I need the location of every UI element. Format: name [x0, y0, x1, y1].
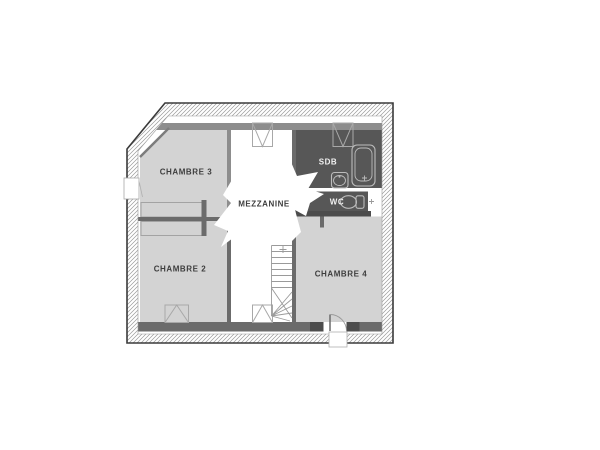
room-label-chambre3: CHAMBRE 3 — [160, 168, 213, 177]
wall-bottom-cap-right — [347, 322, 360, 332]
rooms — [140, 130, 382, 322]
room-label-chambre2: CHAMBRE 2 — [154, 265, 207, 274]
wall-bottom-band-left — [138, 322, 310, 332]
wall-nub — [320, 217, 324, 228]
wall-top-band — [156, 123, 382, 130]
door-threshold — [329, 332, 347, 347]
window-icon — [124, 178, 139, 199]
closet-end-wall — [202, 200, 207, 236]
wall-bottom-band-right — [360, 322, 383, 332]
floor-plan-page: CHAMBRE 3 CHAMBRE 2 CHAMBRE 4 MEZZANINE … — [0, 0, 600, 450]
staircase-icon — [272, 246, 293, 322]
closet-wall — [138, 217, 231, 221]
floor-plan: CHAMBRE 3 CHAMBRE 2 CHAMBRE 4 MEZZANINE … — [0, 0, 600, 450]
room-label-chambre4: CHAMBRE 4 — [315, 270, 368, 279]
room-label-wc: WC — [330, 198, 344, 207]
room-label-mezzanine: MEZZANINE — [238, 200, 290, 209]
room-label-sdb: SDB — [319, 158, 338, 167]
wall-bottom-cap-left — [310, 322, 324, 332]
roof-window-icon — [253, 305, 273, 323]
